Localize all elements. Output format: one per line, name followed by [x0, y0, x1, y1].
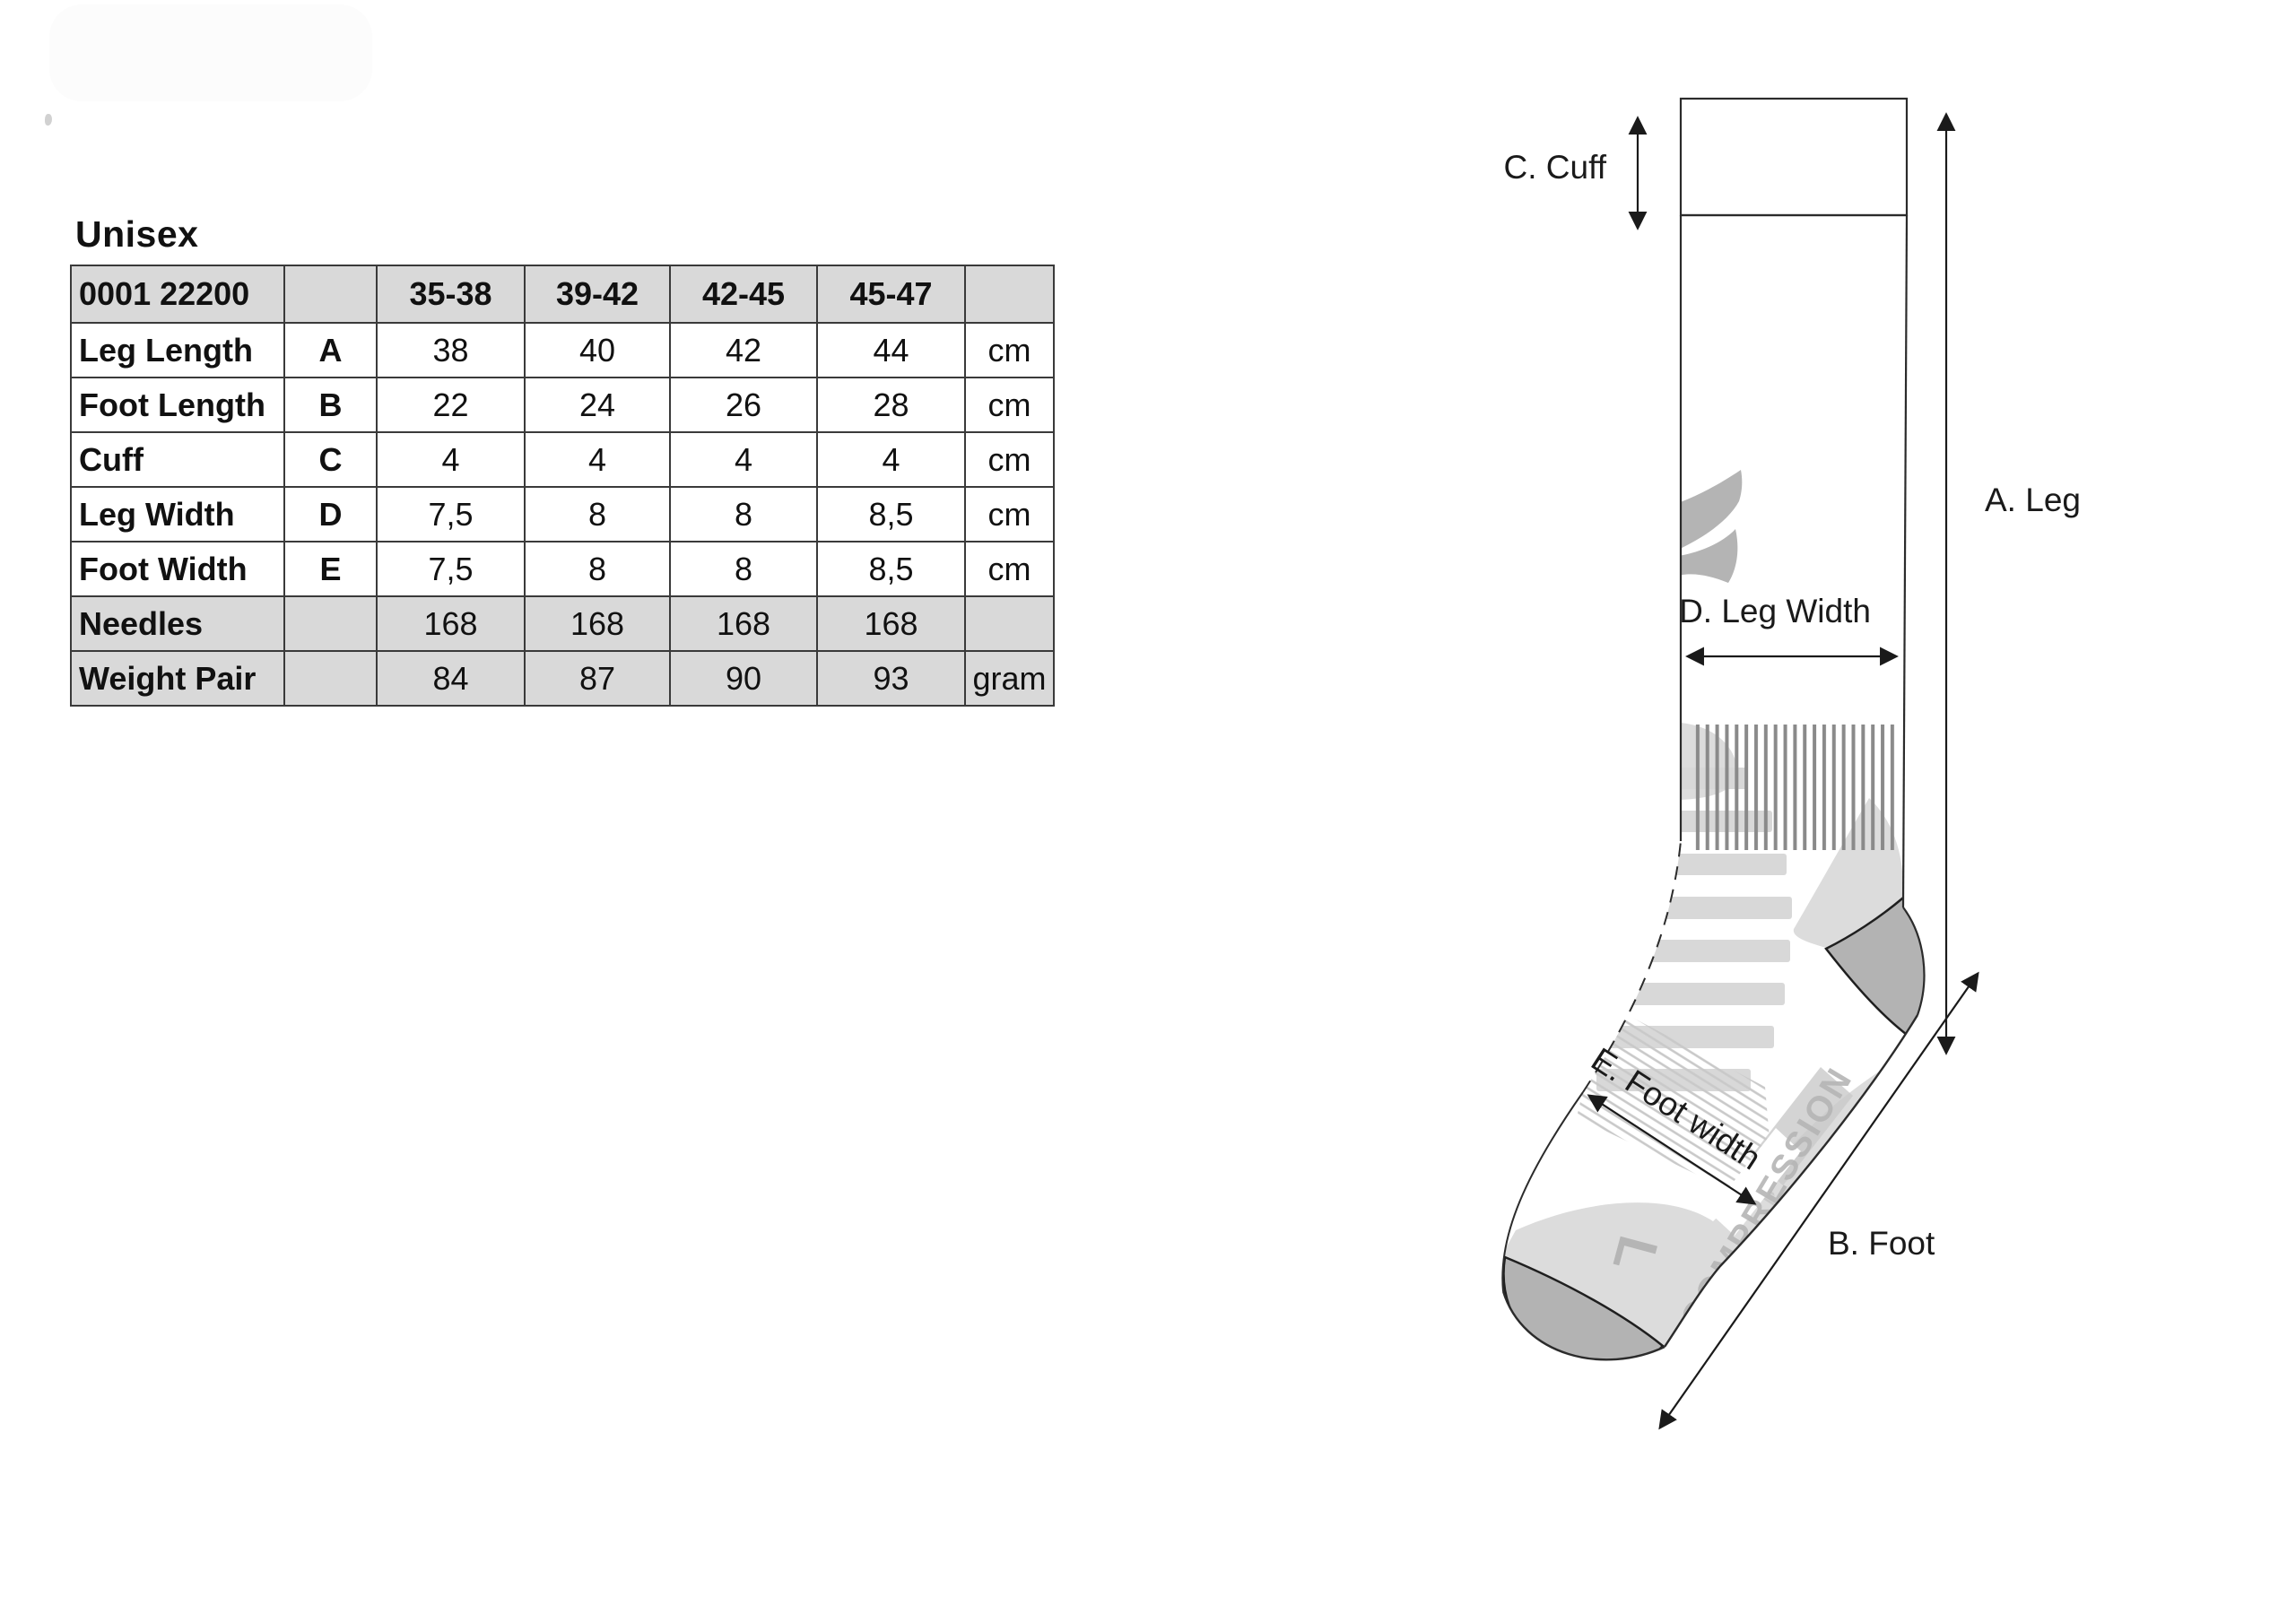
cuff-label: C. Cuff — [1504, 149, 1607, 186]
foot-label: B. Foot — [1828, 1225, 1935, 1262]
ankle-rib-band — [1692, 725, 1895, 850]
size-chart-page: Unisex 0001 2220035-3839-4242-4545-47 Le… — [0, 0, 2296, 1623]
cuff-rib — [1681, 99, 1907, 215]
leg-label: A. Leg — [1985, 482, 2081, 518]
sock-diagram: L COMPRESSION — [0, 0, 2296, 1623]
brand-logo-icon — [1678, 470, 1742, 583]
leg-width-label: D. Leg Width — [1679, 593, 1871, 629]
